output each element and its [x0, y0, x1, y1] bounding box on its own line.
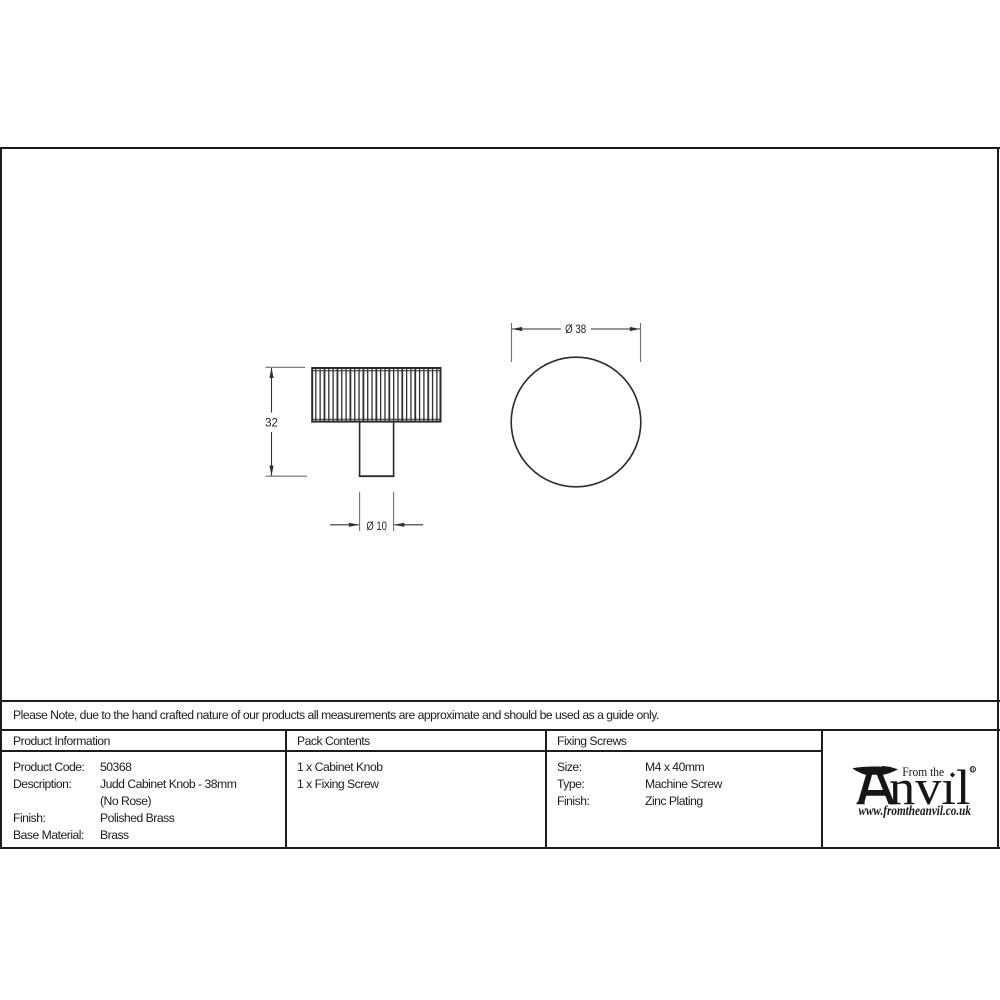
svg-text:Ø 10: Ø 10: [366, 521, 387, 533]
svg-text:32: 32: [265, 417, 278, 429]
svg-text:Ø 38: Ø 38: [565, 324, 586, 336]
svg-text:From the: From the: [902, 764, 944, 779]
svg-text:www.fromtheanvil.co.uk: www.fromtheanvil.co.uk: [859, 802, 972, 817]
